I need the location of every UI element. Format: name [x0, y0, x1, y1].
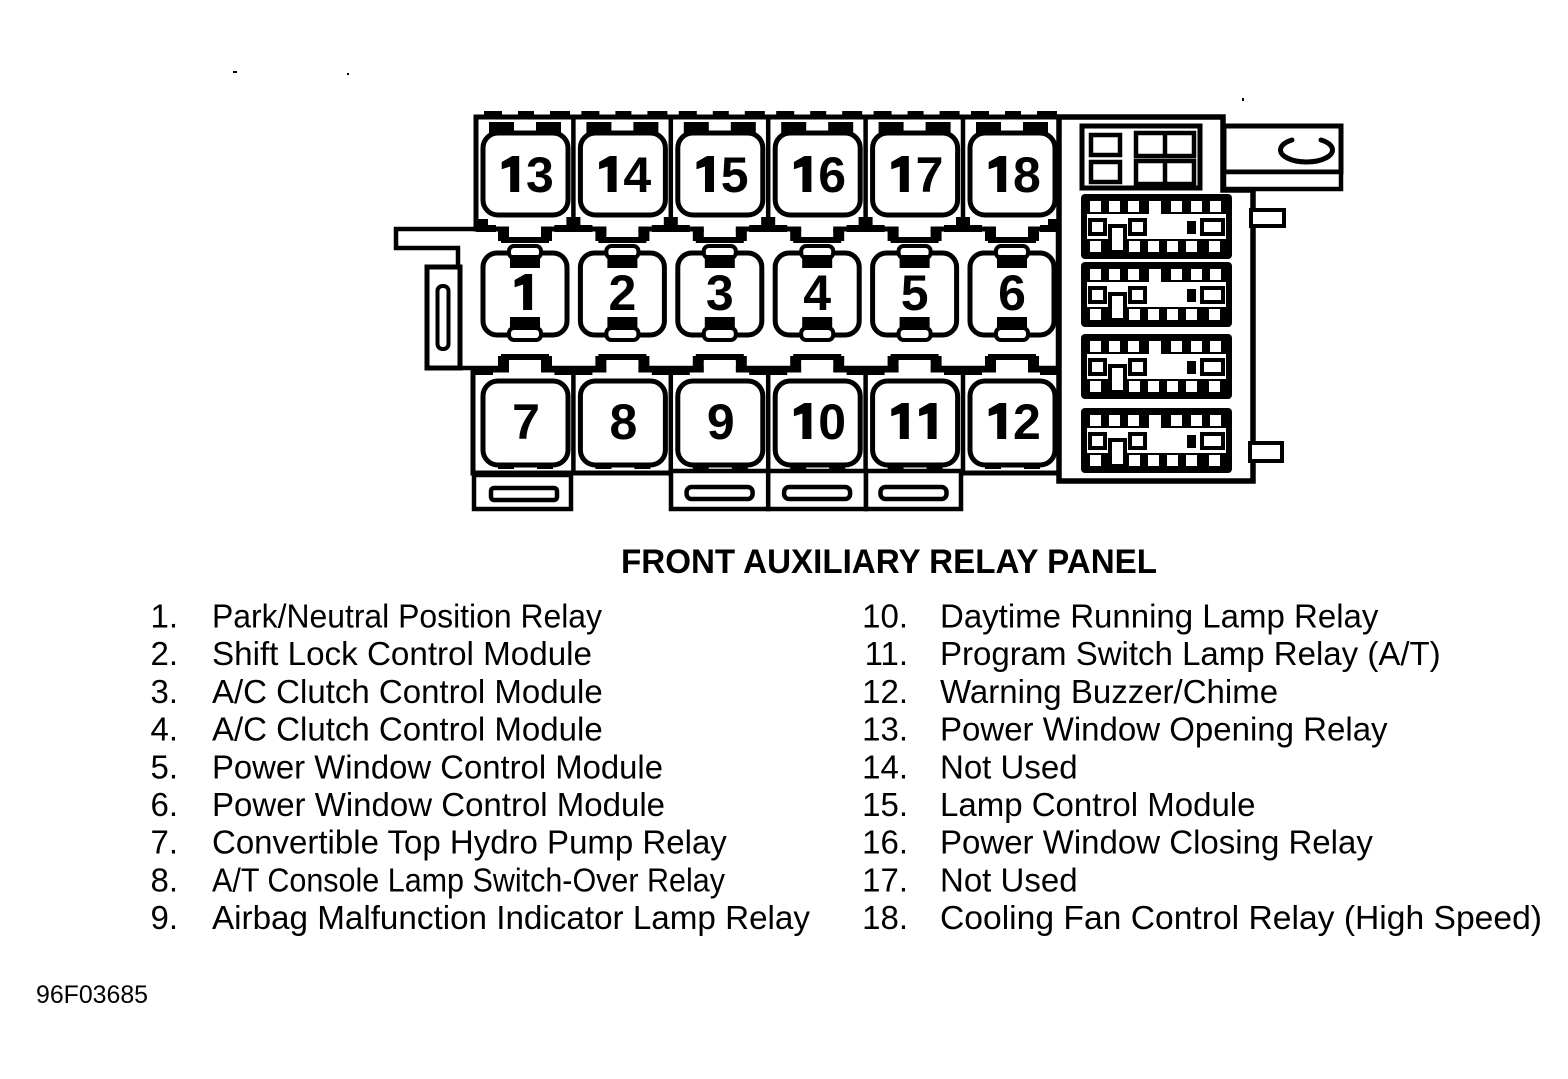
svg-text:Power Window Closing Relay: Power Window Closing Relay — [940, 824, 1373, 861]
svg-text:Program Switch Lamp Relay (A/T: Program Switch Lamp Relay (A/T) — [940, 635, 1441, 672]
svg-text:4: 4 — [803, 265, 831, 321]
svg-text:9: 9 — [707, 394, 735, 450]
svg-text:12.: 12. — [862, 673, 908, 710]
svg-text:16.: 16. — [862, 824, 908, 861]
svg-text:6: 6 — [998, 265, 1026, 321]
svg-text:8: 8 — [609, 394, 637, 450]
svg-text:3.: 3. — [150, 673, 178, 710]
svg-text:8: 8 — [1013, 147, 1041, 203]
svg-text:9.: 9. — [150, 899, 178, 936]
svg-text:1.: 1. — [150, 598, 178, 635]
svg-text:Airbag Malfunction Indicator L: Airbag Malfunction Indicator Lamp Relay — [212, 899, 810, 936]
svg-text:2: 2 — [608, 265, 636, 321]
svg-text:5: 5 — [901, 265, 929, 321]
svg-text:Convertible Top Hydro Pump Rel: Convertible Top Hydro Pump Relay — [212, 824, 727, 861]
svg-text:Shift Lock Control Module: Shift Lock Control Module — [212, 635, 592, 672]
svg-text:13.: 13. — [862, 711, 908, 748]
svg-text:Power Window Control Module: Power Window Control Module — [212, 748, 663, 785]
svg-text:Power Window Control Module: Power Window Control Module — [212, 786, 665, 823]
svg-text:18.: 18. — [862, 899, 908, 936]
svg-text:Park/Neutral Position Relay: Park/Neutral Position Relay — [212, 598, 602, 635]
svg-text:6.: 6. — [150, 786, 178, 823]
svg-text:Cooling Fan Control Relay (Hig: Cooling Fan Control Relay (High Speed) — [940, 899, 1542, 936]
svg-text:3: 3 — [526, 147, 554, 203]
svg-text:A/C Clutch Control Module: A/C Clutch Control Module — [212, 711, 603, 748]
svg-text:2: 2 — [1013, 394, 1041, 450]
svg-text:5.: 5. — [150, 748, 178, 785]
svg-text:Power Window Opening Relay: Power Window Opening Relay — [940, 711, 1388, 748]
svg-text:11.: 11. — [865, 635, 908, 672]
svg-text:6: 6 — [818, 147, 846, 203]
svg-text:96F03685: 96F03685 — [36, 981, 148, 1009]
svg-text:5: 5 — [721, 147, 749, 203]
svg-text:2.: 2. — [150, 635, 178, 672]
svg-text:Warning Buzzer/Chime: Warning Buzzer/Chime — [940, 673, 1278, 710]
svg-text:17.: 17. — [862, 861, 908, 898]
svg-text:8.: 8. — [150, 861, 178, 898]
svg-text:Not Used: Not Used — [940, 748, 1078, 785]
svg-text:Daytime Running Lamp Relay: Daytime Running Lamp Relay — [940, 598, 1379, 635]
svg-text:7: 7 — [916, 147, 944, 203]
svg-text:14.: 14. — [862, 748, 908, 785]
svg-text:7.: 7. — [150, 824, 178, 861]
svg-text:4.: 4. — [150, 711, 178, 748]
svg-text:7: 7 — [512, 394, 540, 450]
svg-text:4: 4 — [623, 147, 651, 203]
svg-text:FRONT AUXILIARY RELAY PANEL: FRONT AUXILIARY RELAY PANEL — [621, 543, 1157, 581]
svg-text:15.: 15. — [862, 786, 908, 823]
svg-text:3: 3 — [706, 265, 734, 321]
svg-text:Not Used: Not Used — [940, 861, 1078, 898]
svg-text:10.: 10. — [862, 598, 908, 635]
svg-text:A/C Clutch Control Module: A/C Clutch Control Module — [212, 673, 603, 710]
svg-text:A/T Console Lamp Switch-Over R: A/T Console Lamp Switch-Over Relay — [212, 861, 725, 898]
svg-text:0: 0 — [818, 394, 846, 450]
svg-text:Lamp Control Module: Lamp Control Module — [940, 786, 1256, 823]
